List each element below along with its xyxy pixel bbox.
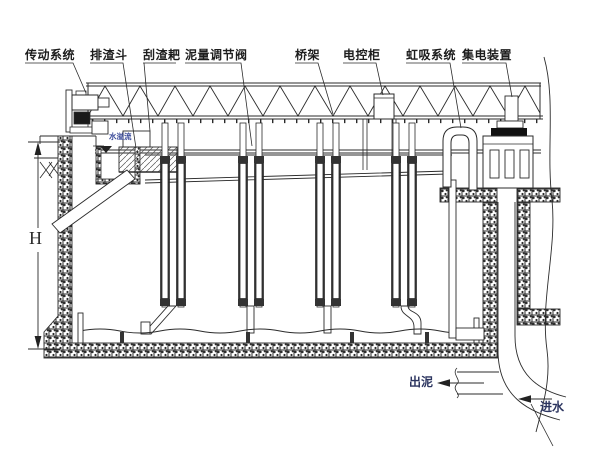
diagram-canvas bbox=[0, 0, 600, 450]
label-water-in: 进水 bbox=[540, 401, 564, 413]
label-drive-system: 传动系统 bbox=[25, 49, 75, 62]
label-collector-device: 集电装置 bbox=[462, 49, 512, 62]
suction-header bbox=[145, 155, 452, 183]
bottom-scraper bbox=[78, 313, 494, 343]
suction-pipe-pair bbox=[238, 123, 264, 307]
collector-assembly bbox=[483, 96, 533, 188]
label-slag-hopper: 排渣斗 bbox=[90, 49, 128, 62]
label-scum-rake: 刮渣耙 bbox=[143, 49, 181, 62]
label-mud-valve: 泥量调节阀 bbox=[185, 49, 248, 62]
water-level-icon bbox=[100, 146, 112, 153]
label-bridge-frame: 桥架 bbox=[295, 49, 320, 62]
right-inner-pipe bbox=[449, 180, 484, 340]
drive-assembly bbox=[66, 90, 109, 134]
siphon-pipe bbox=[443, 127, 477, 190]
break-line bbox=[536, 57, 553, 432]
mud-out-arrow bbox=[437, 379, 484, 387]
drop-pipe-straight bbox=[324, 306, 331, 333]
diagram-page: 传动系统 排渣斗 刮渣耙 泥量调节阀 桥架 电控柜 虹吸系统 集电装置 水溢流 … bbox=[0, 0, 600, 450]
label-control-cabinet: 电控柜 bbox=[343, 49, 381, 62]
label-water-overflow: 水溢流 bbox=[109, 133, 132, 141]
suction-pipe-pair bbox=[315, 123, 341, 307]
suction-pipe-pair bbox=[391, 123, 417, 307]
tank-structure bbox=[34, 136, 560, 358]
label-siphon-system: 虹吸系统 bbox=[406, 49, 456, 62]
label-mud-out: 出泥 bbox=[409, 376, 433, 388]
label-height-dim: H bbox=[29, 229, 42, 247]
